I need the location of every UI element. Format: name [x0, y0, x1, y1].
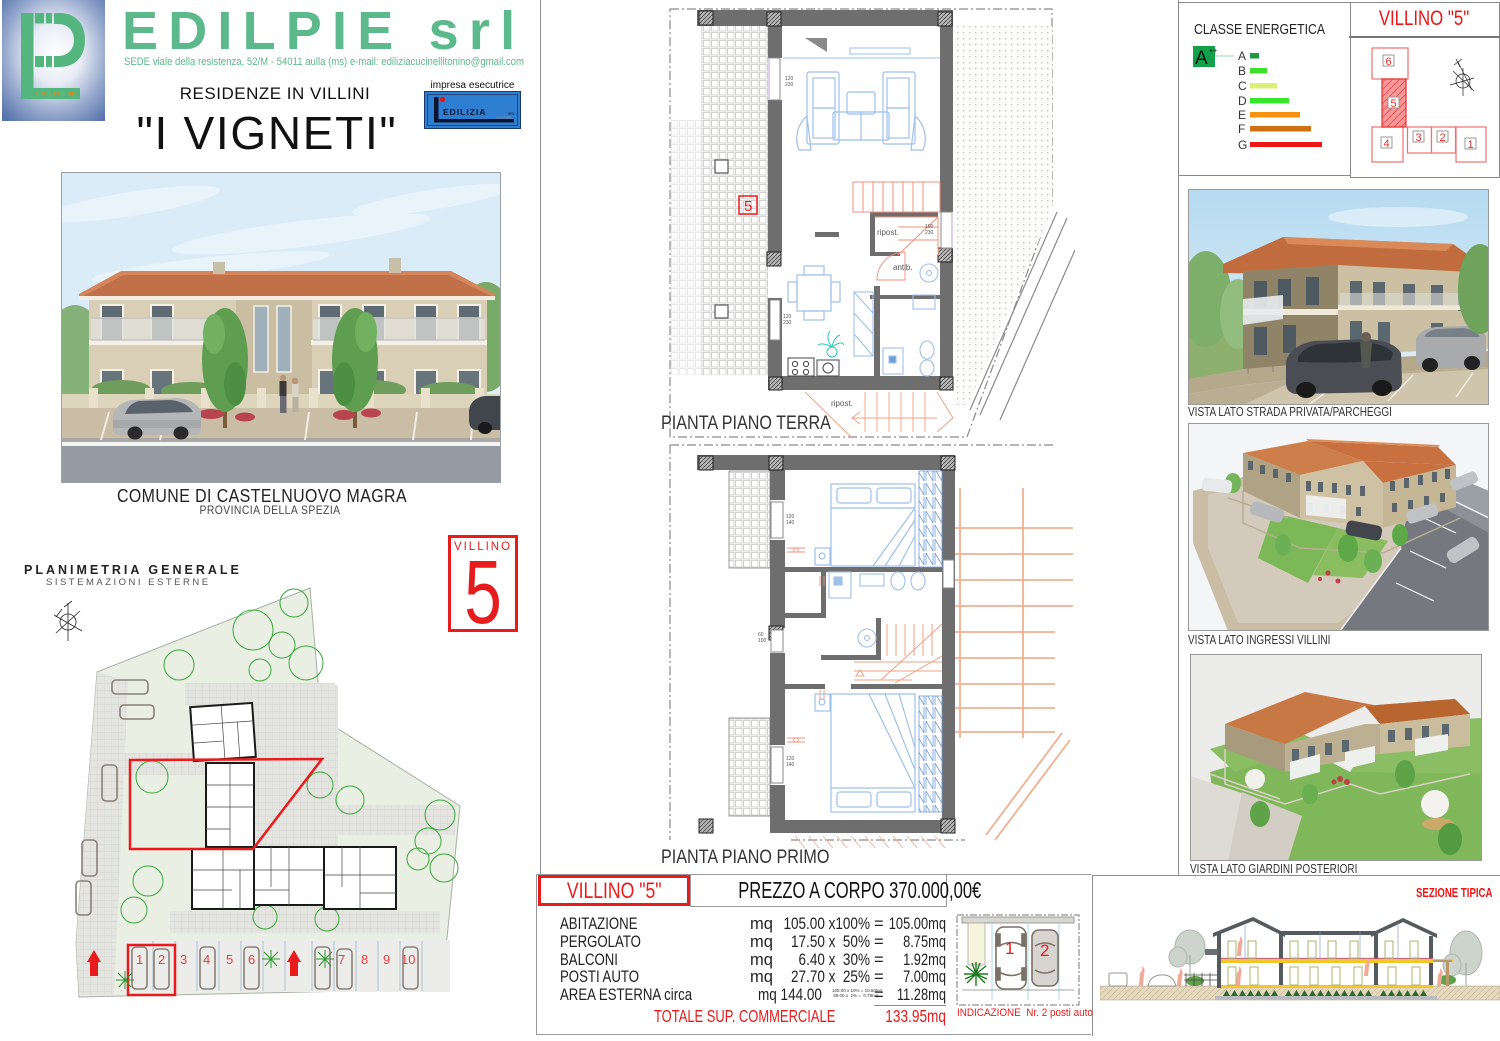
svg-text:F: F	[1238, 122, 1245, 136]
svg-text:A: A	[1195, 48, 1208, 69]
svg-text:3: 3	[1416, 132, 1422, 144]
svg-text:C: C	[1238, 79, 1247, 93]
svg-text:5: 5	[1391, 98, 1397, 110]
svg-text:230: 230	[785, 82, 794, 88]
svg-text:ripost.: ripost.	[877, 228, 899, 237]
svg-text:antib.: antib.	[893, 263, 913, 272]
svg-text:5: 5	[744, 198, 752, 215]
svg-text:140: 140	[786, 762, 795, 768]
svg-text:EDILIZIA: EDILIZIA	[443, 107, 486, 117]
svg-text:2: 2	[158, 952, 165, 967]
svg-text:7: 7	[338, 952, 345, 967]
svg-text:230: 230	[783, 320, 792, 326]
svg-text:9: 9	[383, 952, 390, 967]
svg-text:E: E	[1238, 108, 1246, 122]
svg-text:B: B	[1238, 64, 1246, 78]
svg-text:140: 140	[786, 520, 795, 526]
svg-text:1: 1	[1468, 139, 1474, 151]
svg-text:2: 2	[1440, 132, 1446, 144]
svg-text:A: A	[1238, 49, 1246, 63]
svg-text:CLASSE ENERGETICA: CLASSE ENERGETICA	[1194, 21, 1325, 38]
svg-text:8: 8	[361, 952, 368, 967]
svg-text:ripost.: ripost.	[831, 399, 853, 408]
svg-text:AULLA (MS): AULLA (MS)	[496, 116, 512, 120]
svg-text:1: 1	[136, 952, 143, 967]
svg-text:6: 6	[248, 952, 255, 967]
svg-text:230: 230	[925, 230, 934, 236]
svg-text:4: 4	[1384, 138, 1390, 150]
svg-text:2: 2	[1040, 941, 1049, 960]
svg-text:++: ++	[1209, 48, 1217, 55]
svg-text:D: D	[1238, 94, 1247, 108]
svg-text:EDILPIE srl: EDILPIE srl	[36, 91, 77, 98]
svg-text:100: 100	[758, 638, 767, 644]
svg-text:G: G	[1238, 138, 1247, 152]
svg-text:5: 5	[226, 952, 233, 967]
svg-text:4: 4	[203, 952, 210, 967]
svg-text:6: 6	[1386, 56, 1392, 68]
svg-text:1: 1	[1005, 939, 1014, 958]
svg-text:3: 3	[180, 952, 187, 967]
